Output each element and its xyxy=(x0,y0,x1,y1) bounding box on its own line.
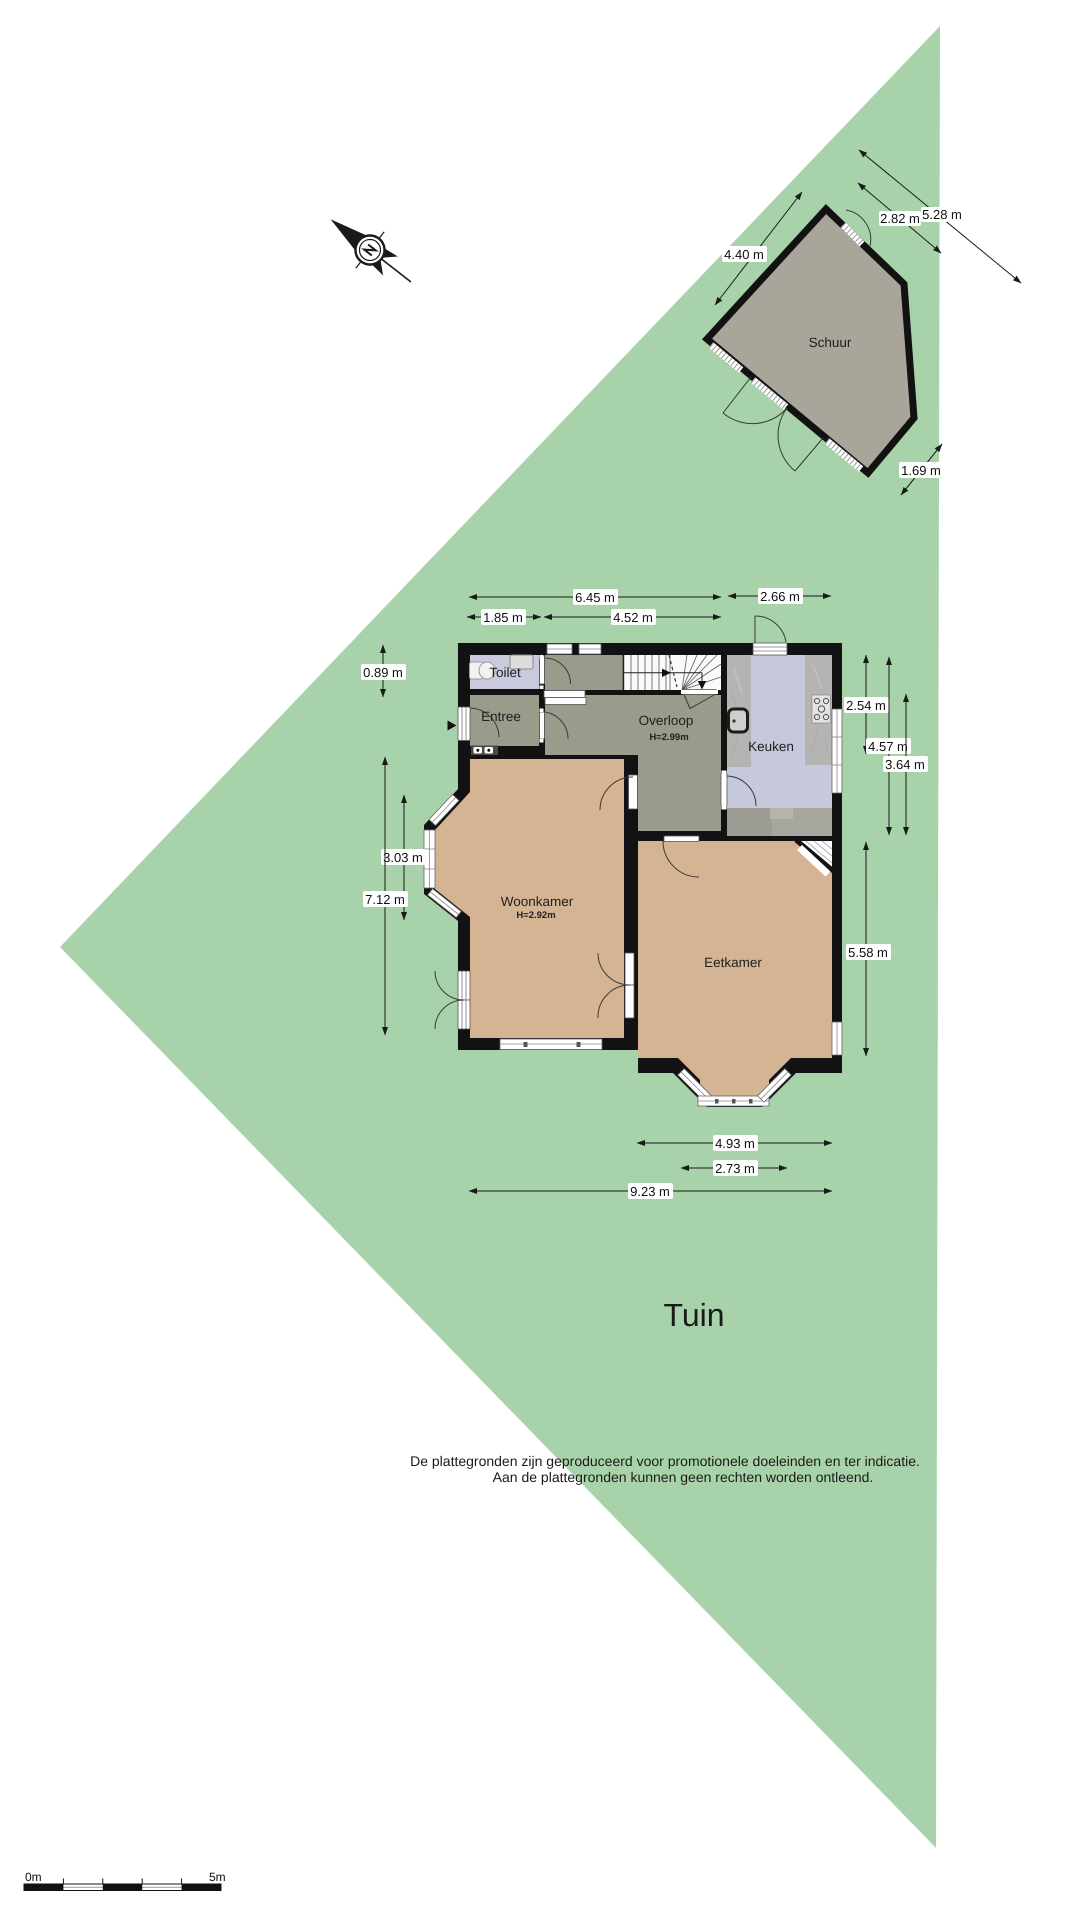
svg-text:6.45 m: 6.45 m xyxy=(575,590,615,605)
svg-text:De plattegronden zijn geproduc: De plattegronden zijn geproduceerd voor … xyxy=(410,1453,920,1469)
svg-text:Keuken: Keuken xyxy=(748,739,794,754)
svg-text:H=2.99m: H=2.99m xyxy=(649,732,688,743)
svg-text:2.54 m: 2.54 m xyxy=(846,698,886,713)
svg-text:5.28 m: 5.28 m xyxy=(922,207,962,222)
svg-text:Woonkamer: Woonkamer xyxy=(501,894,574,909)
svg-text:4.57 m: 4.57 m xyxy=(868,739,908,754)
svg-text:Entree: Entree xyxy=(481,709,521,724)
svg-text:1.85 m: 1.85 m xyxy=(483,610,523,625)
svg-text:3.64 m: 3.64 m xyxy=(885,757,925,772)
svg-text:Toilet: Toilet xyxy=(489,665,521,680)
svg-text:Tuin: Tuin xyxy=(663,1297,724,1333)
svg-text:3.03 m: 3.03 m xyxy=(383,850,423,865)
svg-text:9.23 m: 9.23 m xyxy=(630,1184,670,1199)
svg-text:H=2.92m: H=2.92m xyxy=(516,910,555,921)
svg-text:Aan de plattegronden kunnen ge: Aan de plattegronden kunnen geen rechten… xyxy=(493,1469,874,1485)
svg-text:Eetkamer: Eetkamer xyxy=(704,955,762,970)
svg-text:2.66 m: 2.66 m xyxy=(760,589,800,604)
svg-text:5.58 m: 5.58 m xyxy=(848,945,888,960)
svg-text:4.40 m: 4.40 m xyxy=(724,247,764,262)
svg-text:4.93 m: 4.93 m xyxy=(715,1136,755,1151)
svg-text:Schuur: Schuur xyxy=(809,335,852,350)
svg-text:1.69 m: 1.69 m xyxy=(901,463,941,478)
svg-text:0m: 0m xyxy=(25,1870,42,1884)
svg-text:2.82 m: 2.82 m xyxy=(880,211,920,226)
svg-text:7.12 m: 7.12 m xyxy=(365,892,405,907)
svg-text:5m: 5m xyxy=(209,1870,226,1884)
svg-text:2.73 m: 2.73 m xyxy=(715,1161,755,1176)
svg-text:0.89 m: 0.89 m xyxy=(363,665,403,680)
svg-text:4.52 m: 4.52 m xyxy=(613,610,653,625)
svg-text:Overloop: Overloop xyxy=(639,713,694,728)
